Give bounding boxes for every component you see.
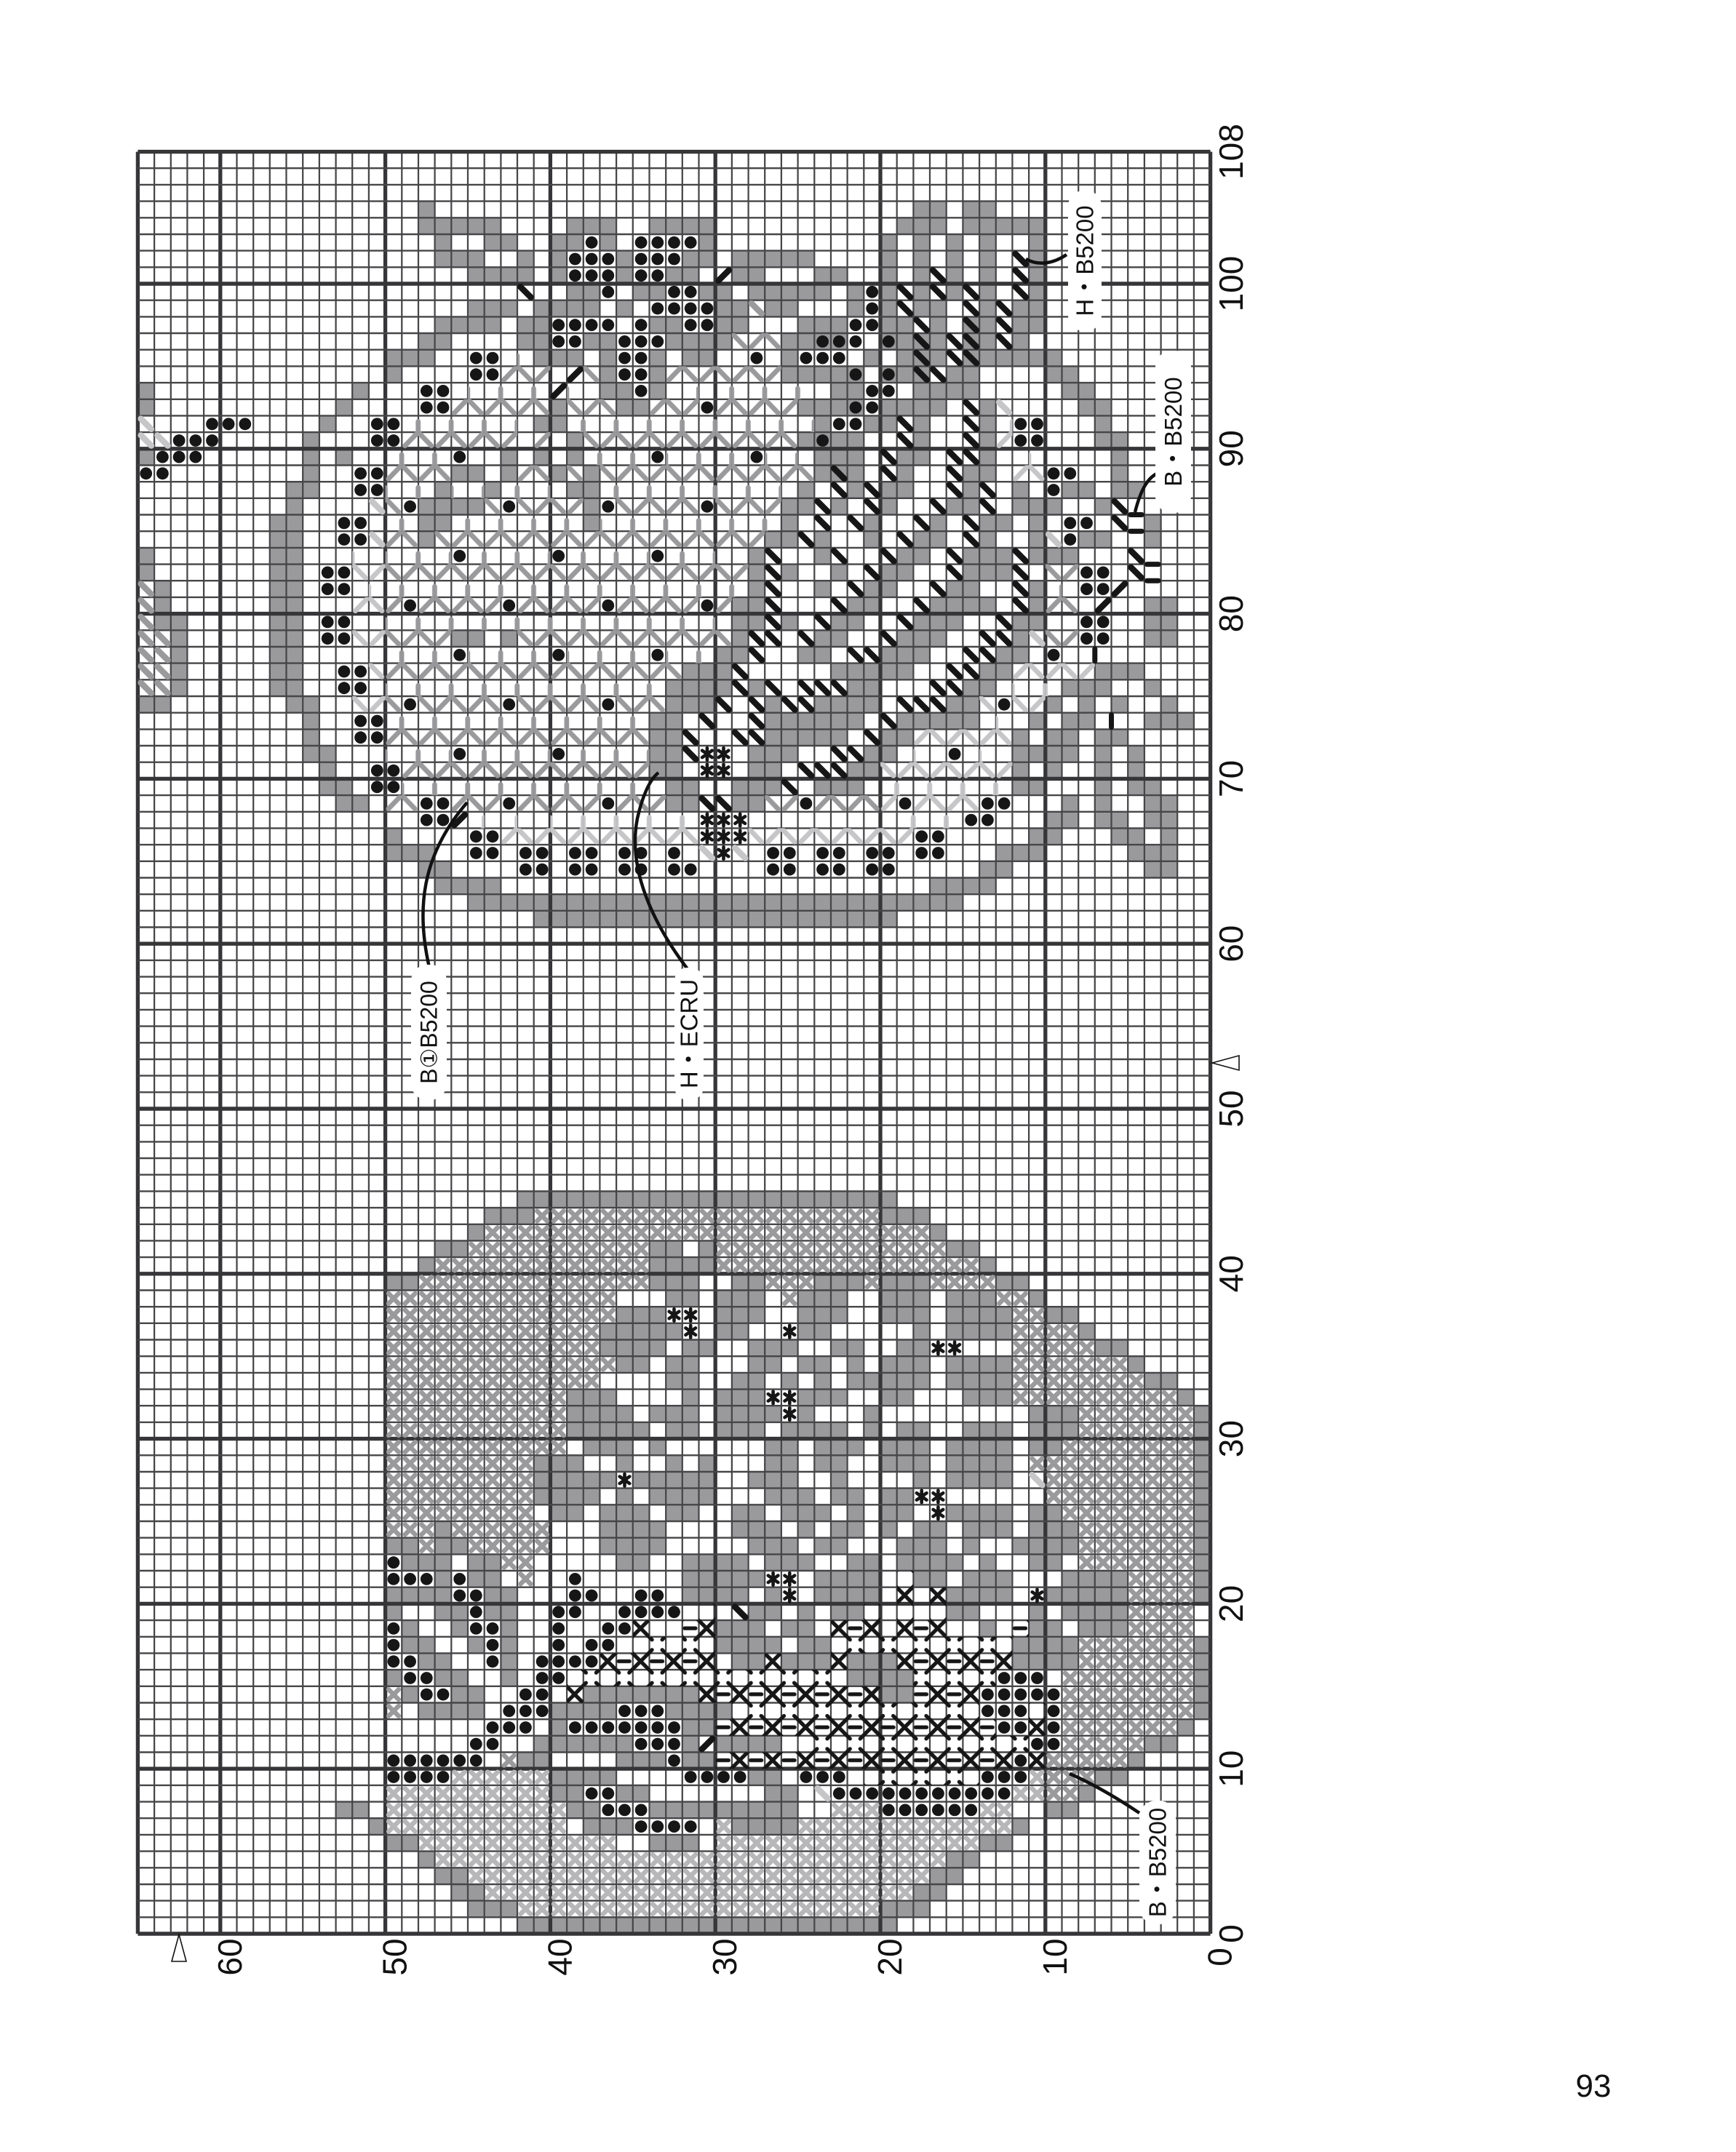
- svg-text:30: 30: [1212, 1420, 1250, 1457]
- svg-text:20: 20: [871, 1938, 909, 1975]
- svg-text:108: 108: [1212, 124, 1250, 180]
- svg-text:B・B5200: B・B5200: [1160, 377, 1187, 486]
- svg-text:20: 20: [1212, 1585, 1250, 1622]
- svg-text:90: 90: [1212, 430, 1250, 467]
- svg-text:0: 0: [1212, 1924, 1250, 1943]
- svg-text:30: 30: [706, 1938, 744, 1975]
- svg-text:B・B5200: B・B5200: [1144, 1808, 1171, 1917]
- svg-text:60: 60: [211, 1938, 249, 1975]
- svg-text:B①B5200: B①B5200: [416, 981, 442, 1084]
- svg-text:10: 10: [1036, 1938, 1074, 1975]
- svg-text:40: 40: [541, 1938, 578, 1975]
- svg-text:100: 100: [1212, 256, 1250, 312]
- svg-text:H・B5200: H・B5200: [1072, 205, 1099, 316]
- svg-text:60: 60: [1212, 925, 1250, 963]
- svg-text:10: 10: [1212, 1750, 1250, 1788]
- svg-text:93: 93: [1576, 2068, 1612, 2104]
- svg-text:80: 80: [1212, 595, 1250, 632]
- svg-text:0: 0: [1201, 1948, 1239, 1966]
- svg-text:H・ECRU: H・ECRU: [676, 979, 703, 1088]
- svg-text:70: 70: [1212, 760, 1250, 797]
- svg-text:40: 40: [1212, 1255, 1250, 1292]
- svg-text:50: 50: [1212, 1090, 1250, 1127]
- svg-text:50: 50: [376, 1938, 414, 1975]
